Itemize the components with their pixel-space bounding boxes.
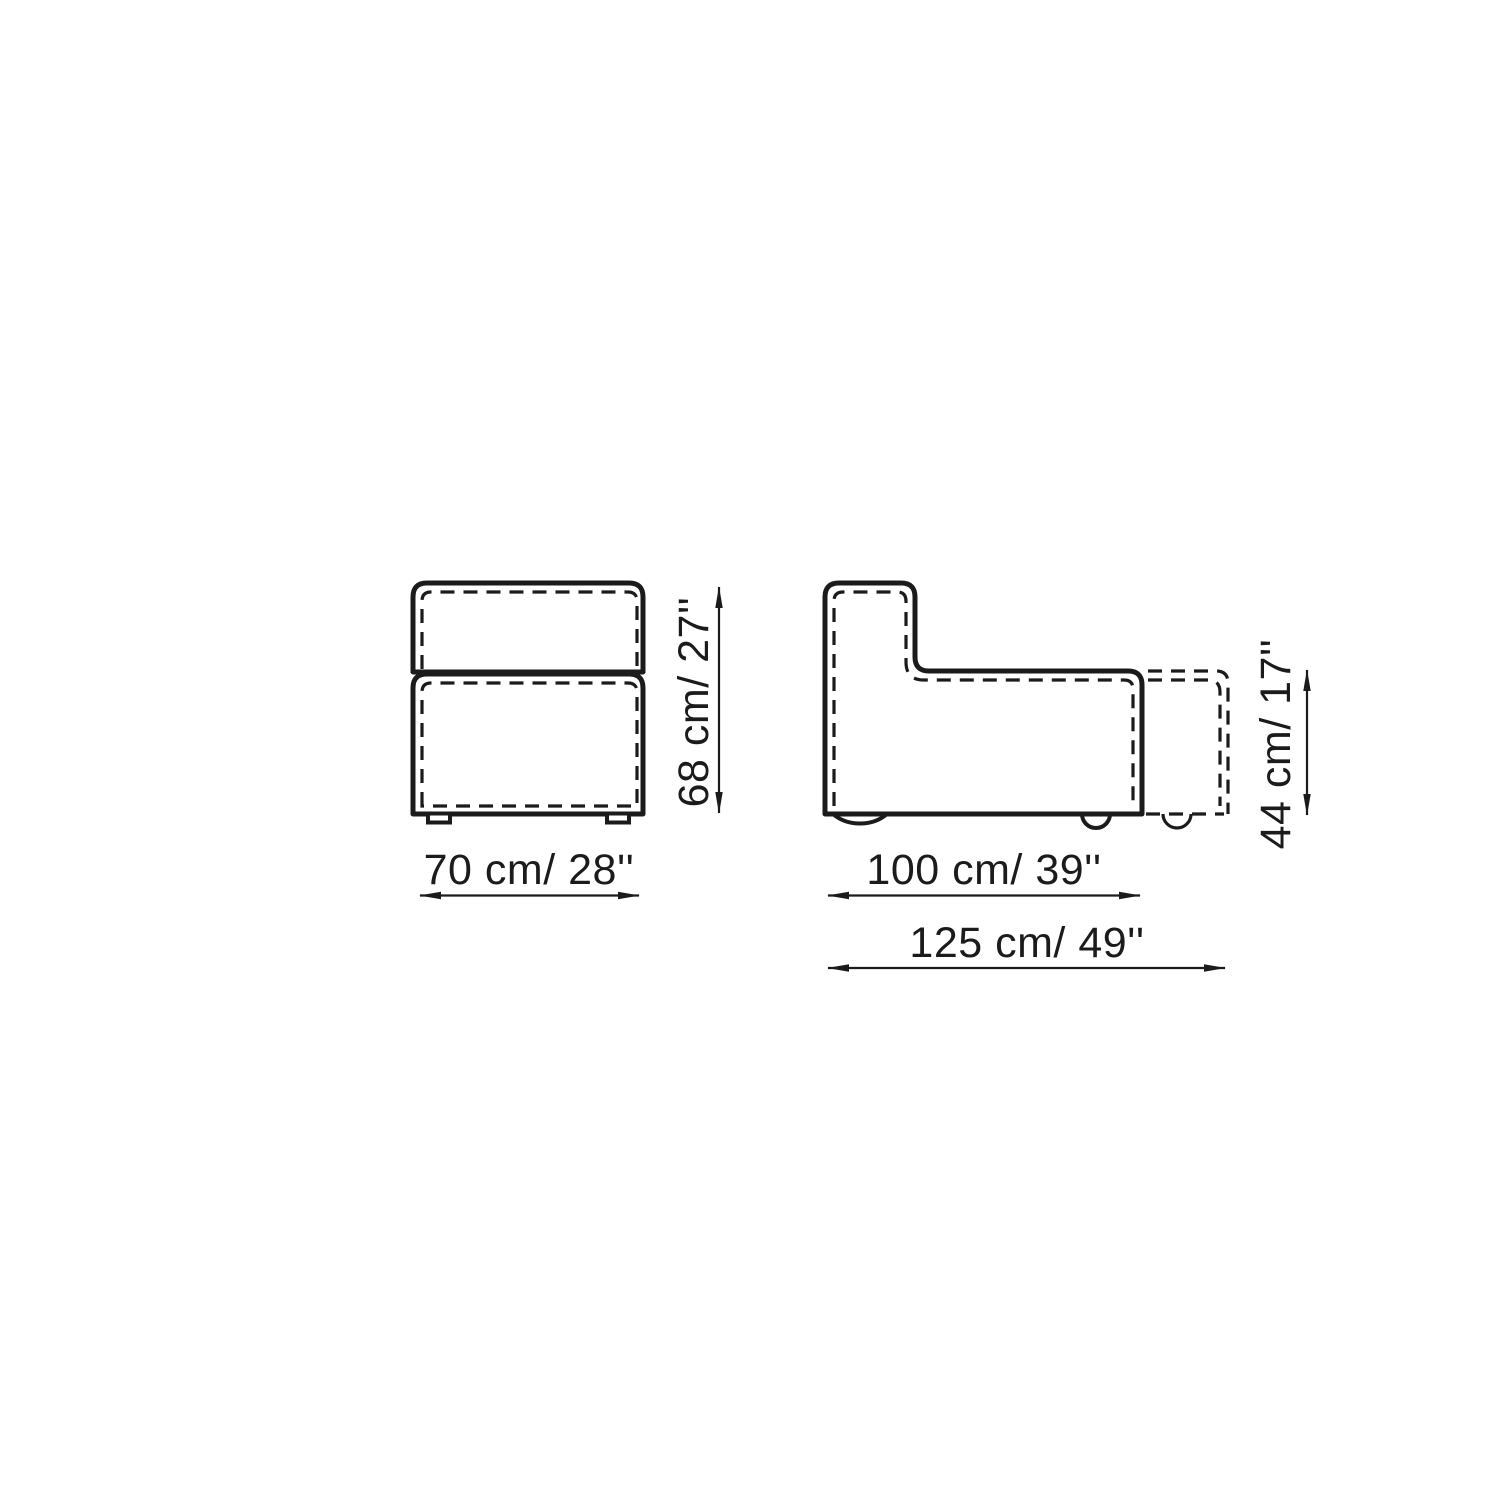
front-height-dimension: 68 cm/ 27'' — [670, 587, 719, 813]
side-profile-outline — [825, 583, 1142, 814]
front-foot-left — [428, 814, 450, 823]
dimension-drawing: 68 cm/ 27'' 70 cm/ 28'' 100 cm/ 39'' 125… — [0, 0, 1500, 1500]
front-height-dimension-label: 68 cm/ 27'' — [670, 597, 718, 808]
ghost-extension-outer-dashed — [1146, 671, 1228, 814]
front-width-dimension-label: 70 cm/ 28'' — [424, 846, 635, 894]
front-width-dimension: 70 cm/ 28'' — [420, 846, 639, 896]
front-seat-outline — [413, 674, 643, 814]
side-overall-depth-dimension-label: 125 cm/ 49'' — [909, 919, 1144, 967]
ghost-caster-wheel — [1163, 814, 1191, 828]
ghost-extension-inner-dashed — [1148, 680, 1220, 806]
side-overall-depth-dimension: 125 cm/ 49'' — [828, 919, 1225, 968]
side-seat-height-dimension-label: 44 cm/ 17'' — [1252, 639, 1300, 850]
side-seat-depth-dimension-label: 100 cm/ 39'' — [866, 846, 1101, 894]
side-seat-depth-dimension: 100 cm/ 39'' — [828, 846, 1140, 896]
front-foot-right — [607, 814, 629, 823]
side-seat-height-dimension: 44 cm/ 17'' — [1252, 639, 1307, 850]
side-view — [825, 583, 1228, 828]
front-view — [413, 583, 643, 823]
front-backrest-outline — [413, 583, 643, 672]
